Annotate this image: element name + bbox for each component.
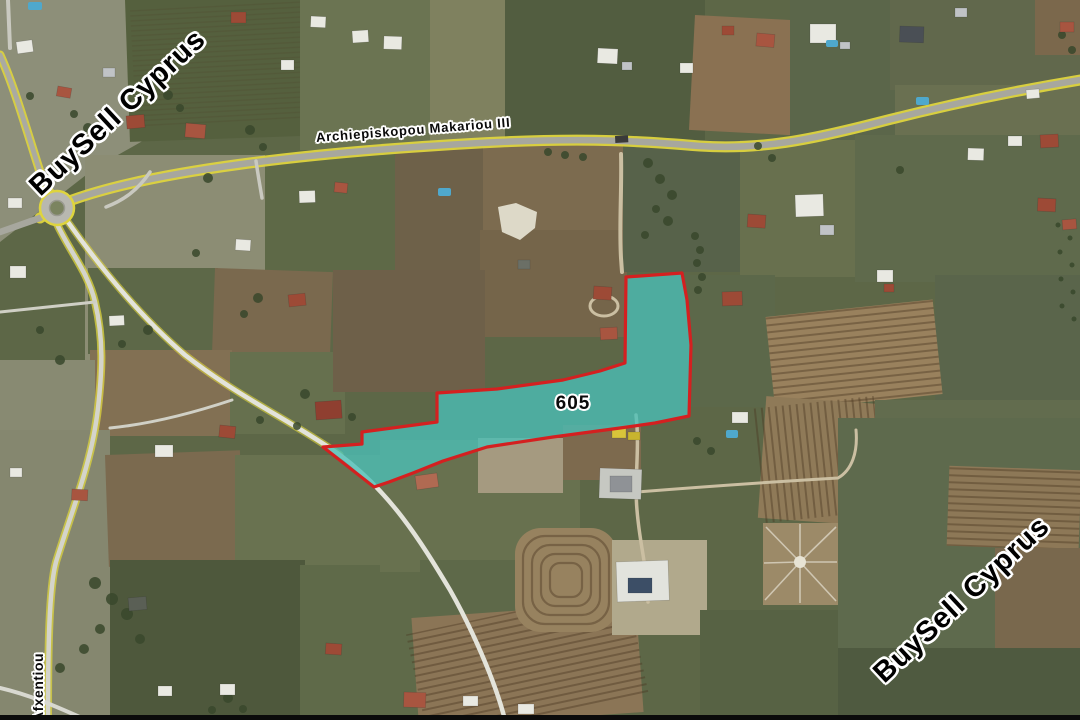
striped-field bbox=[766, 299, 943, 411]
satellite-map-image: Archiepiskopou Makariou III 605 Afxentio… bbox=[0, 0, 1080, 720]
side-road-label: Afxentiou bbox=[30, 653, 46, 720]
concentric-field bbox=[515, 528, 617, 632]
bottom-black-bar bbox=[0, 715, 1080, 720]
map-canvas bbox=[0, 0, 1080, 720]
radial-field bbox=[763, 523, 838, 605]
parcel-number-label: 605 bbox=[556, 393, 591, 415]
